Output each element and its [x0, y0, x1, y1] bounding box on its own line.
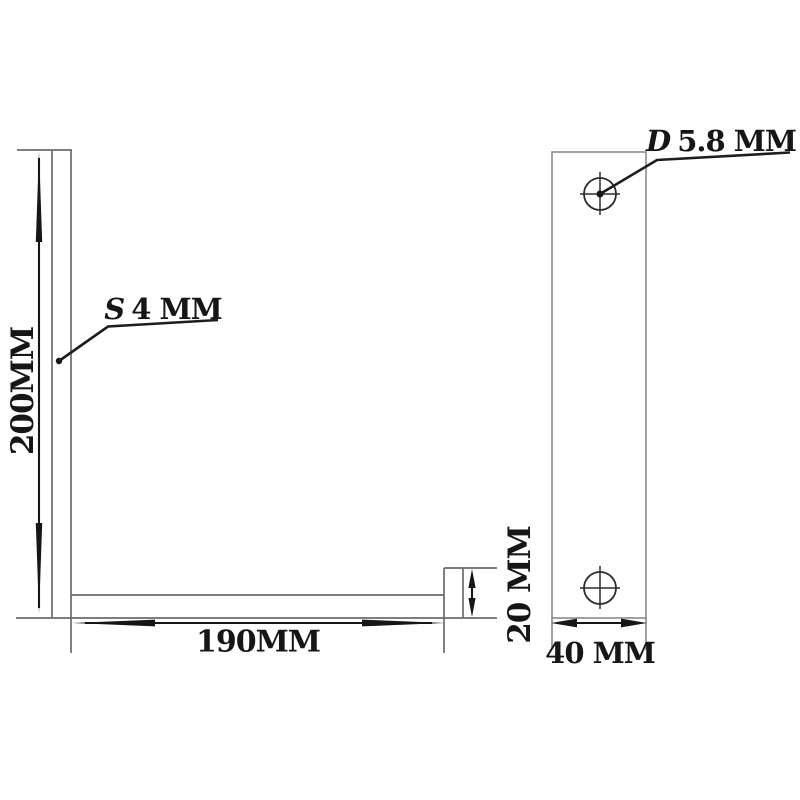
side-view-outline	[16, 150, 497, 653]
thickness-value: 4 MM	[131, 292, 221, 326]
lip-height-dimension-label: 20 MM	[502, 526, 538, 644]
technical-drawing-canvas: 200MM 190MM S4 MM D5.8 MM 20 MM 40 MM	[0, 0, 800, 800]
thickness-label: S4 MM	[104, 292, 221, 326]
bracket-drawing	[0, 0, 800, 800]
thickness-leader-line	[56, 320, 218, 364]
thickness-prefix: S	[104, 292, 124, 326]
hole-diameter-leader-line	[597, 153, 791, 198]
width-dimension-arrow	[551, 619, 647, 628]
front-view-outline	[552, 152, 646, 650]
height-dimension-label: 200MM	[5, 327, 41, 455]
hole-bottom-icon	[580, 566, 620, 609]
hole-diameter-prefix: D	[646, 124, 670, 158]
hole-diameter-value: 5.8 MM	[677, 124, 796, 158]
length-dimension-label: 190MM	[196, 625, 320, 660]
width-dimension-label: 40 MM	[545, 636, 655, 670]
hole-diameter-label: D5.8 MM	[646, 124, 796, 158]
lip-height-dimension-arrow	[468, 569, 475, 617]
